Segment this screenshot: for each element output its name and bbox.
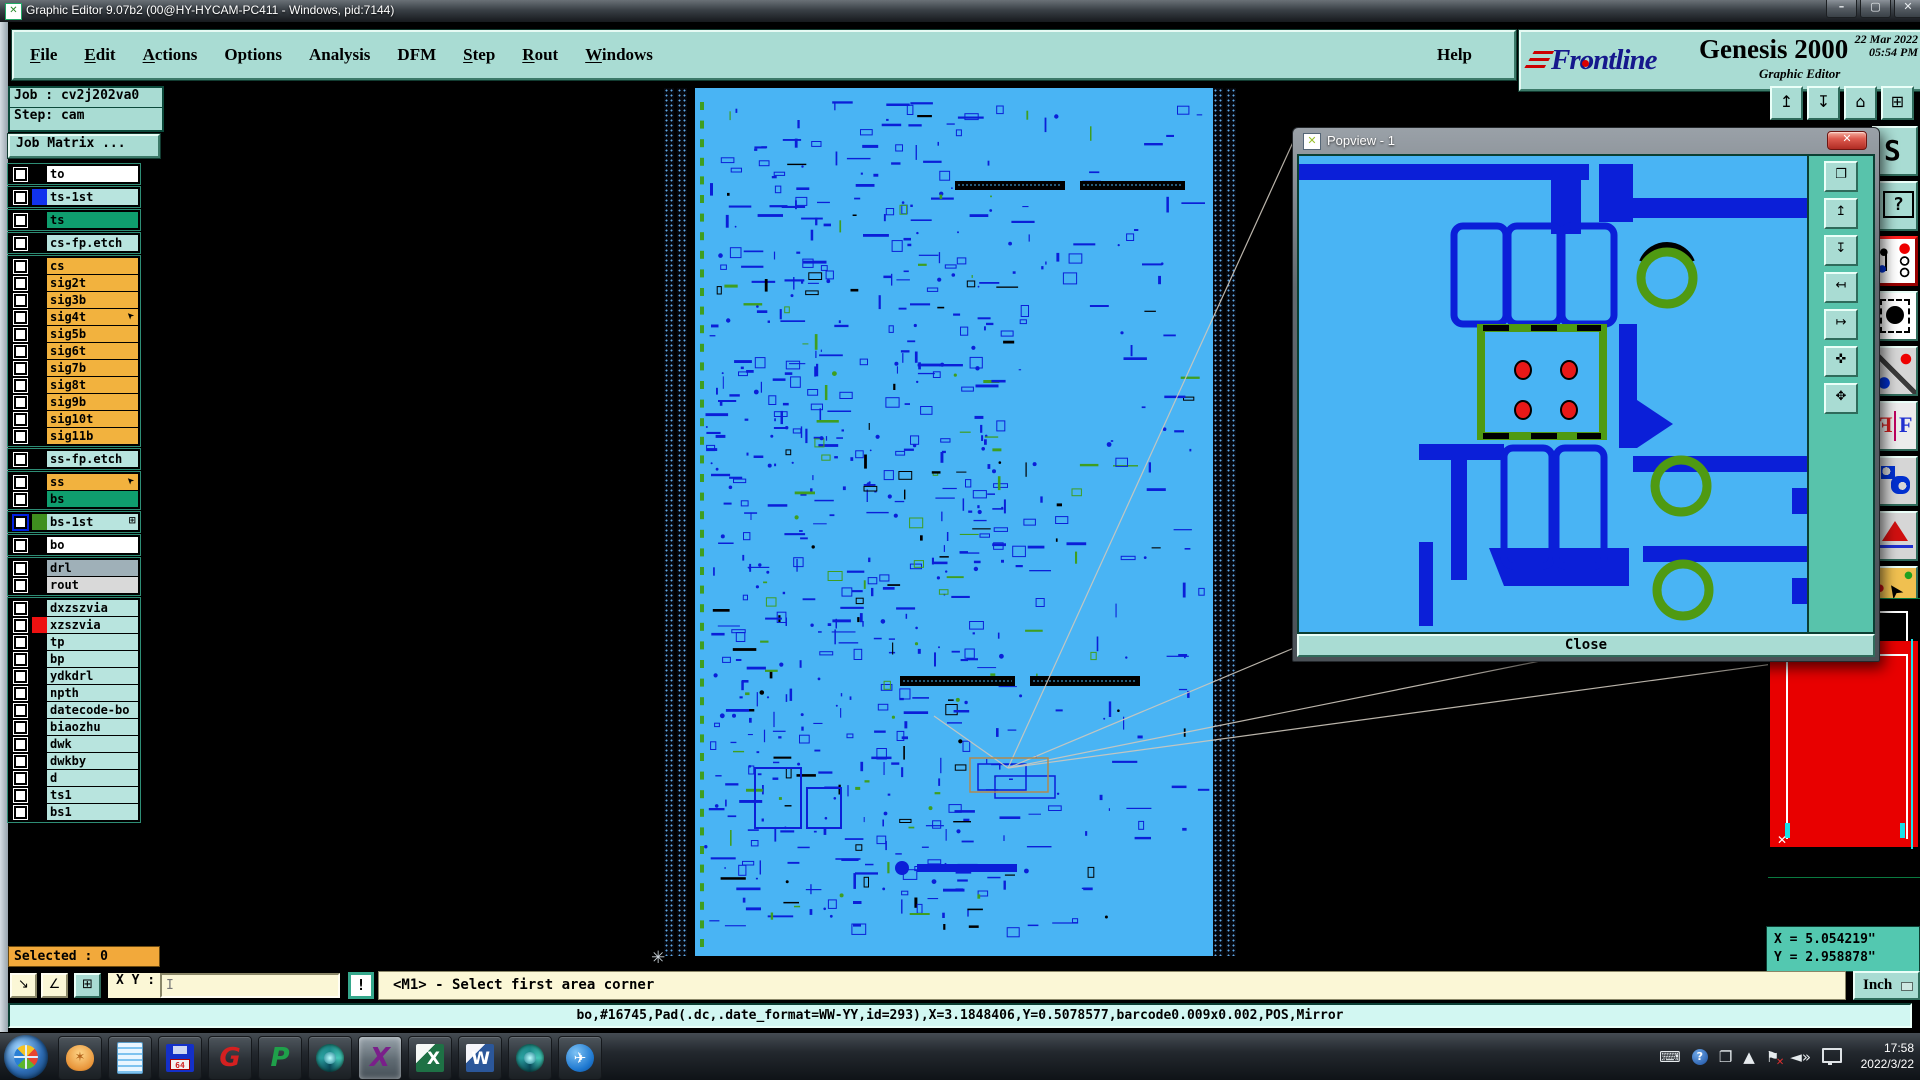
layer-checkbox[interactable] <box>14 738 27 751</box>
layer-checkbox[interactable] <box>14 345 27 358</box>
status-line: bo,#16745,Pad(.dc,.date_format=WW-YY,id=… <box>8 1003 1912 1028</box>
tray-expand-icon[interactable]: ▲ <box>1743 1050 1755 1065</box>
layer-checkbox[interactable] <box>14 260 27 273</box>
layer-checkbox[interactable] <box>14 602 27 615</box>
logo-speedlines-icon <box>1524 51 1554 69</box>
popview-close-button[interactable]: Close <box>1297 634 1875 657</box>
start-button[interactable] <box>4 1035 48 1079</box>
layer-checkbox[interactable] <box>14 562 27 575</box>
menu-item-edit[interactable]: Edit <box>84 45 115 65</box>
app-shell-viewer[interactable]: ✶ <box>58 1036 102 1080</box>
layer-label[interactable]: sig7b <box>47 360 138 376</box>
layer-row-sig4t[interactable]: sig4t➤ <box>10 309 138 325</box>
popview-nav-strip: ❐↥↧↤↦✜✥ <box>1807 156 1873 632</box>
zoom-in-icon[interactable]: ↥ <box>1824 198 1858 229</box>
layer-row-datecode-bo[interactable]: datecode-bo <box>10 702 138 718</box>
app-green-p[interactable]: P <box>258 1036 302 1080</box>
job-label: Job : cv2j202va0 <box>10 88 162 108</box>
grid-toggle-icon[interactable]: ⊞ <box>74 973 101 998</box>
layer-color-swatch[interactable] <box>32 189 47 205</box>
layer-checkbox[interactable] <box>14 294 27 307</box>
application-window: ✕ Graphic Editor 9.07b2 (00@HY-HYCAM-PC4… <box>0 0 1920 1080</box>
layer-checkbox[interactable] <box>14 721 27 734</box>
app-goldwave-icon: G <box>219 1045 240 1071</box>
keyboard-icon[interactable]: ⌨ <box>1659 1050 1681 1065</box>
layer-checkbox[interactable] <box>14 516 27 529</box>
layer-label[interactable]: tp <box>47 634 138 650</box>
layer-checkbox[interactable] <box>14 806 27 819</box>
app-notepad-icon <box>117 1042 143 1074</box>
popview-title-bar[interactable]: ✕ Popview - 1 ✕ <box>1293 128 1879 154</box>
app-backup-save[interactable] <box>158 1036 202 1080</box>
navigator-marker-icon: ✕ <box>1777 833 1787 847</box>
layer-checkbox[interactable] <box>14 430 27 443</box>
layer-checkbox[interactable] <box>14 168 27 181</box>
layer-row-d[interactable]: d <box>10 770 138 786</box>
view-up-icon[interactable]: ↥ <box>1770 86 1803 120</box>
detach-view-icon[interactable]: ❐ <box>1824 161 1858 192</box>
layer-label[interactable]: ts1 <box>47 787 138 803</box>
layer-checkbox[interactable] <box>14 636 27 649</box>
layer-row-cs[interactable]: cs <box>10 258 138 274</box>
layer-checkbox[interactable] <box>14 379 27 392</box>
app-capture-1-icon <box>316 1044 344 1072</box>
app-backup-save-icon <box>166 1044 194 1072</box>
popview-app-icon: ✕ <box>1303 133 1321 150</box>
layer-label[interactable]: bp <box>47 651 138 667</box>
top-view-toolbar: ↥↧⌂⊞ <box>1770 86 1914 120</box>
layer-label[interactable]: ss➤ <box>47 474 138 490</box>
layer-row-tp[interactable]: tp <box>10 634 138 650</box>
menu-bar: FileEditActionsOptionsAnalysisDFMStepRou… <box>12 30 1516 80</box>
app-capture-2-icon <box>516 1044 544 1072</box>
app-capture-1[interactable] <box>308 1036 352 1080</box>
menu-item-options[interactable]: Options <box>224 45 282 65</box>
layer-label[interactable]: ss-fp.etch <box>47 451 138 467</box>
layer-label[interactable]: bs-1st⊞ <box>47 514 138 530</box>
system-tray: ⌨?❐▲⚑✕◄» <box>1659 1033 1842 1080</box>
layer-label[interactable]: dwkby <box>47 753 138 769</box>
active-layer-cursor-icon: ➤ <box>125 309 137 321</box>
app-word[interactable]: W <box>458 1036 502 1080</box>
popview-title: Popview - 1 <box>1327 133 1395 148</box>
layer-checkbox[interactable] <box>14 277 27 290</box>
layer-label[interactable]: cs-fp.etch <box>47 235 138 251</box>
zoom-out-icon[interactable]: ↧ <box>1824 235 1858 266</box>
layer-row-sig8t[interactable]: sig8t <box>10 377 138 393</box>
layer-checkbox[interactable] <box>14 328 27 341</box>
xy-coordinate-input[interactable]: I <box>160 973 340 998</box>
layer-label[interactable]: sig3b <box>47 292 138 308</box>
units-toggle-button[interactable]: Inch <box>1853 971 1920 1000</box>
layer-group: cssig2tsig3bsig4t➤sig5bsig6tsig7bsig8tsi… <box>8 256 140 446</box>
layer-label[interactable]: npth <box>47 685 138 701</box>
layer-color-swatch[interactable] <box>32 309 47 325</box>
app-notepad[interactable] <box>108 1036 152 1080</box>
menu-item-step[interactable]: Step <box>463 45 495 65</box>
layer-group: ts <box>8 210 140 230</box>
menu-bar-items: FileEditActionsOptionsAnalysisDFMStepRou… <box>14 45 653 65</box>
product-subtitle: Graphic Editor <box>1759 66 1840 82</box>
pcb-board-view[interactable] <box>695 88 1213 956</box>
layer-label[interactable]: sig10t <box>47 411 138 427</box>
frontline-logo: Frontline <box>1529 44 1656 77</box>
layer-row-sig3b[interactable]: sig3b <box>10 292 138 308</box>
windows-taskbar: ✶GPXXW✈ ⌨?❐▲⚑✕◄» 17:582022/3/22 <box>0 1032 1920 1080</box>
layer-label[interactable]: ydkdrl <box>47 668 138 684</box>
popview-body: ❐↥↧↤↦✜✥ <box>1297 154 1875 634</box>
layer-color-swatch[interactable] <box>32 428 47 444</box>
popview-window[interactable]: ✕ Popview - 1 ✕ <box>1292 127 1880 662</box>
layer-row-rout[interactable]: rout <box>10 577 138 593</box>
layer-row-sig11b[interactable]: sig11b <box>10 428 138 444</box>
layer-checkbox[interactable] <box>14 396 27 409</box>
pan-left-icon[interactable]: ↤ <box>1824 272 1858 303</box>
layer-checkbox[interactable] <box>14 670 27 683</box>
session-datetime: 22 Mar 2022 05:54 PM <box>1855 33 1918 59</box>
layer-label[interactable]: rout <box>47 577 138 593</box>
menu-item-help[interactable]: Help <box>1437 45 1472 65</box>
layer-group: to <box>8 164 140 184</box>
layer-group: ss➤bs <box>8 472 140 509</box>
layer-label[interactable]: ts-1st <box>47 189 138 205</box>
layer-label[interactable]: sig6t <box>47 343 138 359</box>
panel-edge-strip <box>1213 88 1223 956</box>
layer-checkbox[interactable] <box>14 704 27 717</box>
layer-color-swatch[interactable] <box>32 770 47 786</box>
layer-label[interactable]: ts <box>47 212 138 228</box>
brand-panel: Frontline Genesis 2000 Graphic Editor 22… <box>1519 30 1920 91</box>
selected-count-badge: Selected : 0 <box>8 946 160 967</box>
layer-row-bp[interactable]: bp <box>10 651 138 667</box>
home-view-icon[interactable]: ⌂ <box>1844 86 1877 120</box>
layer-color-swatch[interactable] <box>32 275 47 291</box>
layer-checkbox[interactable] <box>14 772 27 785</box>
volume-icon[interactable]: ◄» <box>1790 1050 1811 1065</box>
taskbar-clock[interactable]: 17:582022/3/22 <box>1861 1040 1914 1072</box>
app-excel-icon: X <box>416 1044 444 1072</box>
layer-color-swatch[interactable] <box>32 702 47 718</box>
layer-checkbox[interactable] <box>14 362 27 375</box>
layer-label[interactable]: sig4t➤ <box>47 309 138 325</box>
menu-item-file[interactable]: File <box>30 45 57 65</box>
tile-views-icon[interactable]: ⊞ <box>1881 86 1914 120</box>
layer-checkbox[interactable] <box>14 755 27 768</box>
pan-center-icon[interactable]: ✥ <box>1824 383 1858 414</box>
command-history-button[interactable]: ! <box>348 972 374 999</box>
menu-item-actions[interactable]: Actions <box>143 45 198 65</box>
layer-grid-icon: ⊞ <box>128 516 136 526</box>
menu-item-windows[interactable]: Windows <box>585 45 653 65</box>
units-icon <box>1901 982 1913 991</box>
layer-color-swatch[interactable] <box>32 753 47 769</box>
layer-label[interactable]: bo <box>47 537 138 553</box>
windows-flag-icon <box>14 1045 38 1069</box>
layer-color-swatch[interactable] <box>32 514 47 530</box>
window-title: Graphic Editor 9.07b2 (00@HY-HYCAM-PC411… <box>26 3 394 17</box>
app-excel[interactable]: X <box>408 1036 452 1080</box>
app-exceed-x[interactable]: X <box>358 1036 402 1080</box>
layer-row-ss-fp.etch[interactable]: ss-fp.etch <box>10 451 138 467</box>
layer-color-swatch[interactable] <box>32 685 47 701</box>
prompt-message: <M1> - Select first area corner <box>378 971 1846 1000</box>
layer-label[interactable]: sig2t <box>47 275 138 291</box>
layer-row-bo[interactable]: bo <box>10 537 138 553</box>
action-center-flag-icon[interactable]: ⚑✕ <box>1766 1050 1779 1065</box>
layer-color-swatch[interactable] <box>32 292 47 308</box>
layer-label[interactable]: bs1 <box>47 804 138 820</box>
layer-checkbox[interactable] <box>14 653 27 666</box>
app-goldwave[interactable]: G <box>208 1036 252 1080</box>
app-exceed-x-icon: X <box>370 1045 390 1071</box>
view-down-icon[interactable]: ↧ <box>1807 86 1840 120</box>
close-button[interactable]: ✕ <box>1894 0 1920 18</box>
layer-checkbox[interactable] <box>14 453 27 466</box>
layer-color-swatch[interactable] <box>32 258 47 274</box>
layer-label[interactable]: d <box>47 770 138 786</box>
coord-x: X = 5.054219" <box>1774 932 1876 947</box>
layer-row-sig6t[interactable]: sig6t <box>10 343 138 359</box>
maximize-button[interactable]: ▢ <box>1860 0 1891 18</box>
app-shell-viewer-icon: ✶ <box>66 1045 94 1071</box>
layer-row-dxzszvia[interactable]: dxzszvia <box>10 600 138 616</box>
network-icon[interactable] <box>1822 1048 1842 1063</box>
layer-color-swatch[interactable] <box>32 577 47 593</box>
product-name: Genesis 2000 <box>1699 34 1848 65</box>
menu-item-dfm[interactable]: DFM <box>397 45 436 65</box>
panel-edge-strip <box>1226 88 1236 956</box>
layer-row-cs-fp.etch[interactable]: cs-fp.etch <box>10 235 138 251</box>
snap-mode-icon[interactable]: ↘ <box>10 973 37 998</box>
layer-row-ss[interactable]: ss➤ <box>10 474 138 490</box>
layer-color-swatch[interactable] <box>32 617 47 633</box>
layer-label[interactable]: dwk <box>47 736 138 752</box>
layer-row-sig9b[interactable]: sig9b <box>10 394 138 410</box>
layer-checkbox[interactable] <box>14 687 27 700</box>
layer-color-swatch[interactable] <box>32 787 47 803</box>
layer-color-swatch[interactable] <box>32 360 47 376</box>
layer-row-bs-1st[interactable]: bs-1st⊞ <box>10 514 138 530</box>
app-messenger-icon: ✈ <box>566 1044 594 1072</box>
layer-row-dwk[interactable]: dwk <box>10 736 138 752</box>
layer-color-swatch[interactable] <box>32 394 47 410</box>
layer-label[interactable]: bs <box>47 491 138 507</box>
layer-color-swatch[interactable] <box>32 719 47 735</box>
layer-row-to[interactable]: to <box>10 166 138 182</box>
layer-row-xzszvia[interactable]: xzszvia <box>10 617 138 633</box>
layer-group: bs-1st⊞ <box>8 512 140 532</box>
layer-row-dwkby[interactable]: dwkby <box>10 753 138 769</box>
layer-row-ydkdrl[interactable]: ydkdrl <box>10 668 138 684</box>
layer-row-sig10t[interactable]: sig10t <box>10 411 138 427</box>
layer-list: tots-1sttscs-fp.etchcssig2tsig3bsig4t➤si… <box>8 164 140 822</box>
job-matrix-button[interactable]: Job Matrix ... <box>8 134 160 158</box>
layer-group: ts-1st <box>8 187 140 207</box>
app-icon: ✕ <box>5 3 22 20</box>
layer-row-biaozhu[interactable]: biaozhu <box>10 719 138 735</box>
layer-group: bo <box>8 535 140 555</box>
layer-color-swatch[interactable] <box>32 600 47 616</box>
layer-label[interactable]: cs <box>47 258 138 274</box>
layer-color-swatch[interactable] <box>32 235 47 251</box>
layer-label[interactable]: sig5b <box>47 326 138 342</box>
layer-label[interactable]: dxzszvia <box>47 600 138 616</box>
minimize-button[interactable]: – <box>1826 0 1857 18</box>
layer-group: ss-fp.etch <box>8 449 140 469</box>
layer-label[interactable]: sig11b <box>47 428 138 444</box>
job-info-box: Job : cv2j202va0 Step: cam <box>8 86 164 132</box>
layer-checkbox[interactable] <box>14 579 27 592</box>
layer-color-swatch[interactable] <box>32 668 47 684</box>
layer-color-swatch[interactable] <box>32 651 47 667</box>
layer-color-swatch[interactable] <box>32 343 47 359</box>
angle-mode-icon[interactable]: ∠ <box>41 973 68 998</box>
coord-y: Y = 2.958878" <box>1774 950 1876 965</box>
layer-checkbox[interactable] <box>14 214 27 227</box>
layer-color-swatch[interactable] <box>32 166 47 182</box>
layer-checkbox[interactable] <box>14 237 27 250</box>
app-messenger[interactable]: ✈ <box>558 1036 602 1080</box>
popview-zoom-canvas[interactable] <box>1299 156 1807 632</box>
command-bar: ↘ ∠ ⊞ X Y : I ! <M1> - Select first area… <box>8 971 1920 1001</box>
board-circuitry <box>695 88 1213 956</box>
layer-color-swatch[interactable] <box>32 634 47 650</box>
layer-color-swatch[interactable] <box>32 411 47 427</box>
help-tray-icon[interactable]: ? <box>1692 1049 1708 1065</box>
pan-right-icon[interactable]: ↦ <box>1824 309 1858 340</box>
layer-group: cs-fp.etch <box>8 233 140 253</box>
layer-row-bs[interactable]: bs <box>10 491 138 507</box>
window-tray-icon[interactable]: ❐ <box>1719 1050 1732 1065</box>
layer-color-swatch[interactable] <box>32 326 47 342</box>
cursor-coords-panel: X = 5.054219" Y = 2.958878" <box>1766 926 1920 972</box>
left-scroll-rail[interactable] <box>0 22 8 1032</box>
zoom-fit-icon[interactable]: ✜ <box>1824 346 1858 377</box>
layer-label[interactable]: xzszvia <box>47 617 138 633</box>
menu-item-analysis[interactable]: Analysis <box>309 45 370 65</box>
layer-label[interactable]: sig9b <box>47 394 138 410</box>
origin-crosshair-icon: ✳ <box>651 948 665 968</box>
title-bar[interactable]: ✕ Graphic Editor 9.07b2 (00@HY-HYCAM-PC4… <box>0 0 1920 23</box>
layer-checkbox[interactable] <box>14 311 27 324</box>
layer-checkbox[interactable] <box>14 413 27 426</box>
layer-checkbox[interactable] <box>14 191 27 204</box>
layer-group: dxzszviaxzszviatpbpydkdrlnpthdatecode-bo… <box>8 598 140 822</box>
layer-color-swatch[interactable] <box>32 491 47 507</box>
layer-color-swatch[interactable] <box>32 537 47 553</box>
xy-input-label: X Y : <box>108 973 160 998</box>
layer-label[interactable]: biaozhu <box>47 719 138 735</box>
layer-row-sig7b[interactable]: sig7b <box>10 360 138 376</box>
layer-checkbox[interactable] <box>14 476 27 489</box>
navigator-view-rect[interactable] <box>1786 654 1908 839</box>
layer-row-sig5b[interactable]: sig5b <box>10 326 138 342</box>
step-label: Step: cam <box>10 108 162 127</box>
layer-checkbox[interactable] <box>14 493 27 506</box>
layer-checkbox[interactable] <box>14 789 27 802</box>
app-green-p-icon: P <box>270 1045 289 1071</box>
layer-label[interactable]: drl <box>47 560 138 576</box>
layer-group: drlrout <box>8 558 140 595</box>
layer-row-ts1[interactable]: ts1 <box>10 787 138 803</box>
layer-color-swatch[interactable] <box>32 560 47 576</box>
layer-label[interactable]: to <box>47 166 138 182</box>
menu-item-rout[interactable]: Rout <box>522 45 558 65</box>
layer-label[interactable]: sig8t <box>47 377 138 393</box>
layer-checkbox[interactable] <box>14 619 27 632</box>
app-capture-2[interactable] <box>508 1036 552 1080</box>
layer-label[interactable]: datecode-bo <box>47 702 138 718</box>
layer-color-swatch[interactable] <box>32 451 47 467</box>
popview-close-x-button[interactable]: ✕ <box>1827 131 1867 150</box>
active-layer-cursor-icon: ➤ <box>125 474 137 486</box>
app-word-icon: W <box>466 1044 494 1072</box>
layer-color-swatch[interactable] <box>32 736 47 752</box>
layer-row-bs1[interactable]: bs1 <box>10 804 138 820</box>
layer-row-ts[interactable]: ts <box>10 212 138 228</box>
layer-color-swatch[interactable] <box>32 212 47 228</box>
layer-row-drl[interactable]: drl <box>10 560 138 576</box>
layer-row-sig2t[interactable]: sig2t <box>10 275 138 291</box>
layer-color-swatch[interactable] <box>32 474 47 490</box>
layer-color-swatch[interactable] <box>32 377 47 393</box>
panel-edge-strip <box>677 88 687 956</box>
layer-row-ts-1st[interactable]: ts-1st <box>10 189 138 205</box>
layer-row-npth[interactable]: npth <box>10 685 138 701</box>
panel-edge-strip <box>664 88 674 956</box>
layer-checkbox[interactable] <box>14 539 27 552</box>
layer-color-swatch[interactable] <box>32 804 47 820</box>
